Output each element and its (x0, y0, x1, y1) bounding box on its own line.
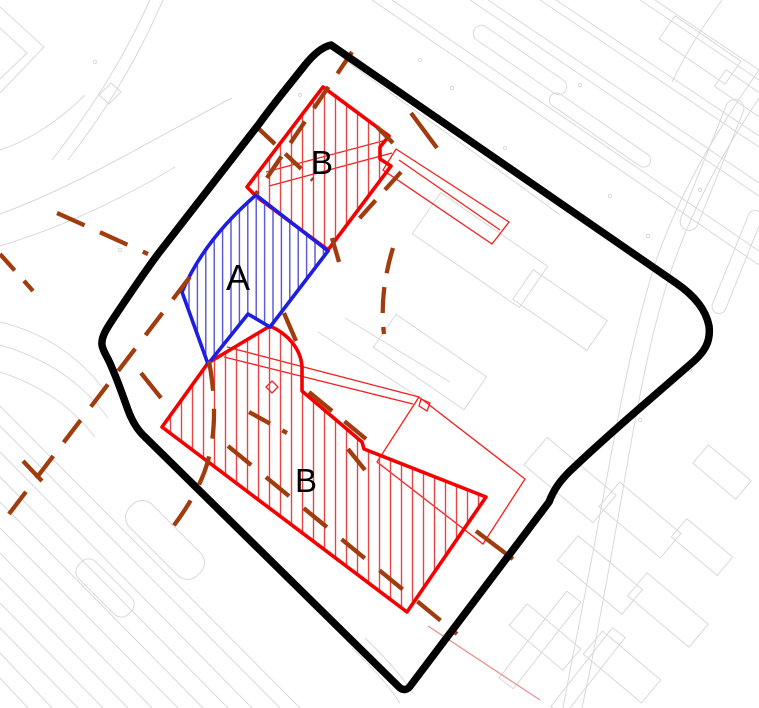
bg-median (677, 97, 746, 234)
bg-building (599, 482, 681, 558)
bg-line (345, 318, 450, 382)
bg-line (52, 0, 150, 160)
bg-building (513, 270, 608, 351)
bg-line (488, 0, 759, 183)
bg-line (318, 332, 420, 398)
bg-line (672, 0, 722, 82)
bg-line (0, 28, 27, 79)
dashed-line (57, 213, 148, 254)
bg-line (0, 372, 95, 437)
bg-building (693, 445, 751, 499)
bg-line (372, 0, 759, 265)
building-outline-inner-line (399, 160, 500, 230)
bg-line (0, 7, 44, 93)
bg-line (0, 678, 28, 708)
bg-line (0, 167, 175, 246)
dashed-line (141, 373, 161, 398)
bg-line (0, 322, 104, 390)
zone-a-label: A (226, 257, 250, 298)
bg-line (0, 452, 252, 708)
bg-building (509, 604, 581, 670)
bg-building (671, 519, 732, 576)
bg-line (540, 0, 759, 147)
site-plan-map: B A B (0, 0, 759, 708)
bg-building (558, 536, 643, 615)
bg-line (0, 653, 52, 708)
bg-building (412, 193, 547, 308)
bg-line (68, 0, 163, 160)
bg-building (499, 591, 581, 689)
bg-line (352, 648, 400, 703)
bg-line (0, 502, 203, 708)
bg-line (0, 98, 232, 214)
bg-line (582, 98, 759, 708)
bg-median (710, 208, 759, 315)
bg-line (0, 603, 103, 708)
background-streets (0, 0, 759, 708)
zone-b-lower-label: B (295, 462, 317, 499)
bg-building (628, 573, 709, 647)
bg-line (0, 578, 128, 708)
bg-building (551, 628, 625, 708)
bg-line (0, 628, 78, 708)
bg-line (0, 95, 85, 150)
bg-building (373, 314, 486, 409)
bg-line (655, 0, 759, 70)
bg-building (715, 70, 759, 121)
bg-line (0, 553, 152, 708)
dashed-line (0, 254, 33, 291)
site-plan-svg: B A B (0, 0, 759, 708)
bg-line (0, 477, 228, 708)
bg-building (524, 437, 616, 522)
zone-b-upper-label: B (311, 144, 333, 181)
